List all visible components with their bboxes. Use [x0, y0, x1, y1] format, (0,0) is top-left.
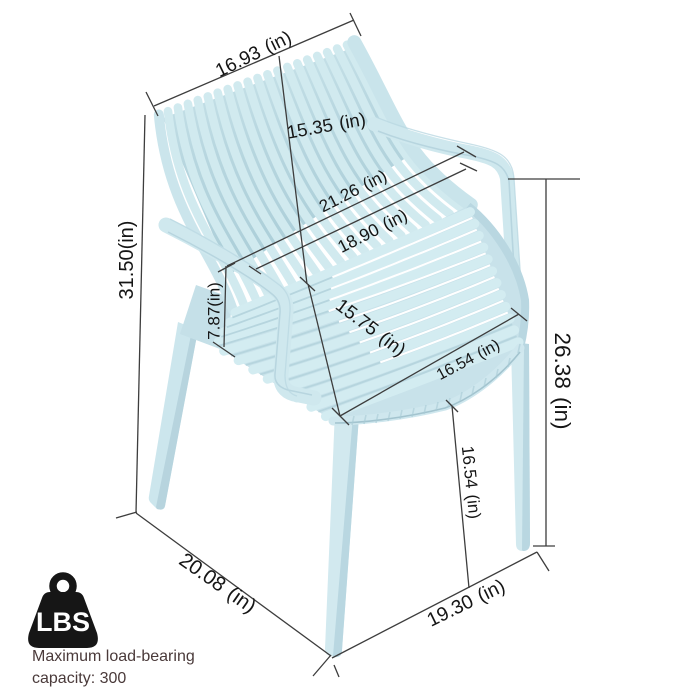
- svg-text:capacity: 300: capacity: 300: [32, 670, 126, 687]
- svg-text:7.87(in): 7.87(in): [204, 282, 223, 340]
- svg-text:31.50(in): 31.50(in): [116, 221, 138, 300]
- svg-text:LBS: LBS: [36, 607, 90, 637]
- svg-text:Maximum load-bearing: Maximum load-bearing: [32, 648, 195, 665]
- svg-text:26.38 (in): 26.38 (in): [550, 333, 575, 430]
